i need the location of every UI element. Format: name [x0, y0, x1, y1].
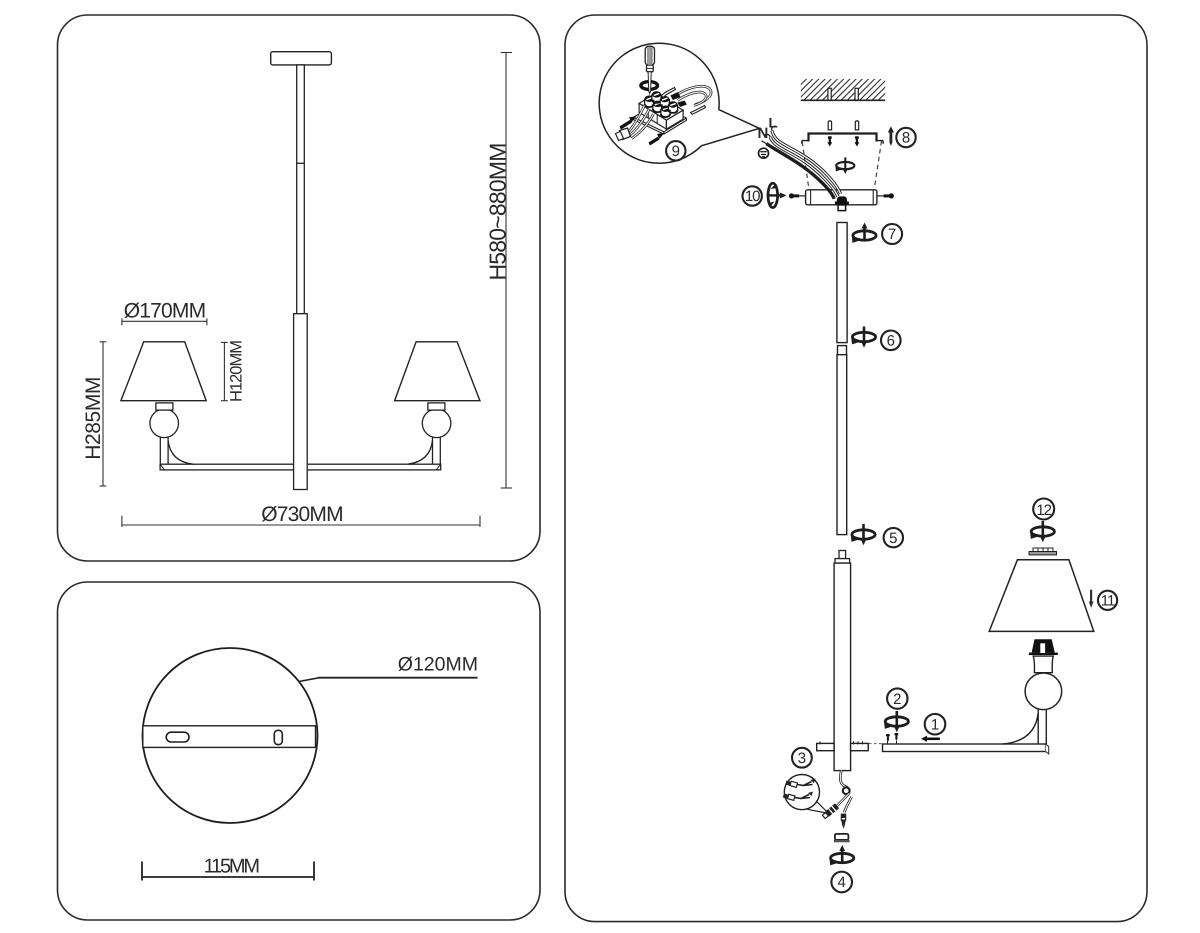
svg-text:H120MM: H120MM — [228, 341, 246, 402]
svg-text:10: 10 — [745, 188, 760, 205]
svg-text:Ø730MM: Ø730MM — [261, 503, 343, 526]
svg-text:H580~880MM: H580~880MM — [485, 143, 511, 280]
svg-text:L: L — [769, 115, 778, 131]
svg-text:6: 6 — [887, 333, 895, 350]
svg-text:7: 7 — [888, 226, 896, 243]
svg-text:1: 1 — [931, 716, 939, 733]
svg-text:12: 12 — [1036, 502, 1051, 519]
svg-text:115MM: 115MM — [204, 856, 260, 878]
svg-text:8: 8 — [902, 130, 910, 147]
svg-text:9: 9 — [672, 143, 680, 160]
svg-text:3: 3 — [798, 750, 806, 767]
svg-text:11: 11 — [1101, 593, 1115, 610]
svg-text:Ø170MM: Ø170MM — [124, 299, 206, 322]
svg-text:H285MM: H285MM — [82, 377, 105, 460]
svg-text:5: 5 — [889, 530, 897, 547]
svg-text:Ø120MM: Ø120MM — [398, 653, 478, 675]
svg-text:2: 2 — [893, 691, 901, 708]
svg-text:4: 4 — [838, 874, 846, 891]
